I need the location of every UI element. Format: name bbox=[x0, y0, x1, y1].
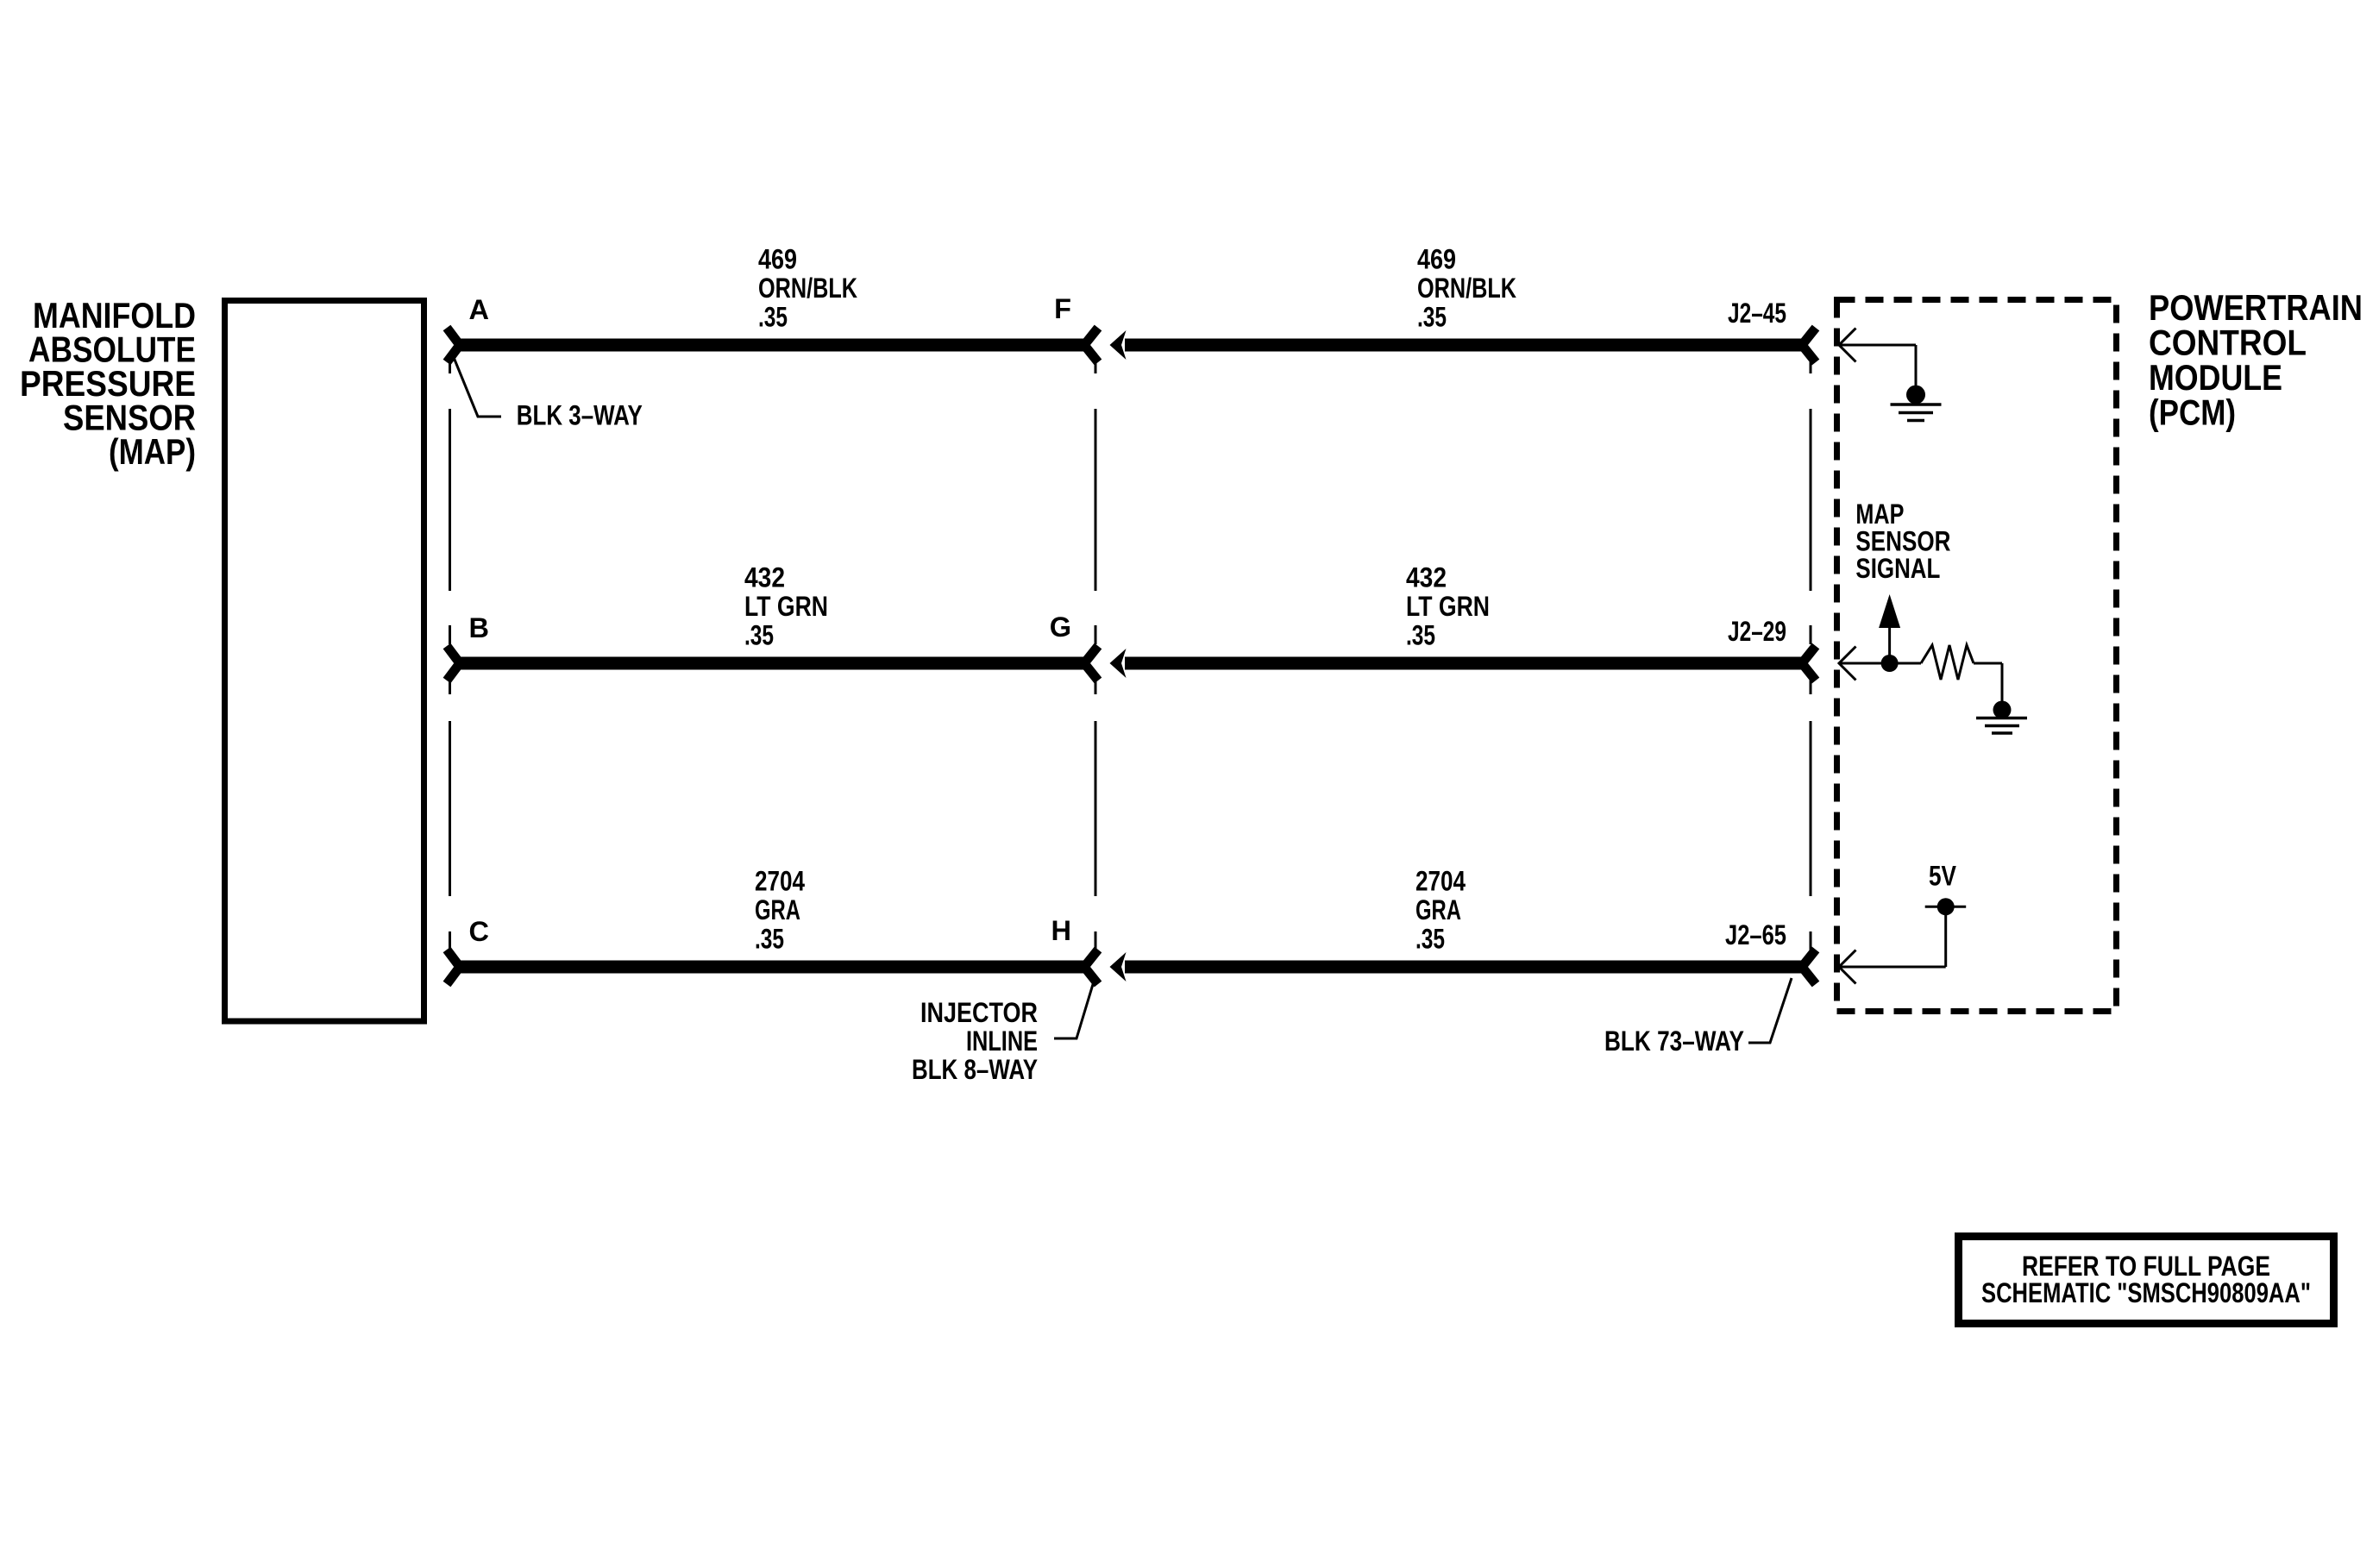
svg-text:H: H bbox=[1051, 915, 1071, 946]
svg-text:(PCM): (PCM) bbox=[2149, 392, 2236, 433]
svg-text:2704: 2704 bbox=[755, 866, 805, 897]
svg-text:B: B bbox=[469, 612, 489, 643]
svg-text:ORN/BLK: ORN/BLK bbox=[758, 273, 857, 304]
svg-text:ORN/BLK: ORN/BLK bbox=[1417, 273, 1516, 304]
svg-text:BLK 73–WAY: BLK 73–WAY bbox=[1604, 1025, 1744, 1057]
svg-text:INLINE: INLINE bbox=[966, 1025, 1038, 1057]
svg-text:469: 469 bbox=[1417, 244, 1456, 275]
svg-text:J2–29: J2–29 bbox=[1728, 616, 1786, 647]
svg-text:INJECTOR: INJECTOR bbox=[920, 997, 1038, 1028]
svg-text:SIGNAL: SIGNAL bbox=[1855, 553, 1940, 584]
svg-text:G: G bbox=[1050, 612, 1071, 643]
svg-text:LT GRN: LT GRN bbox=[1406, 591, 1490, 622]
svg-text:.35: .35 bbox=[755, 923, 784, 954]
svg-text:.35: .35 bbox=[1406, 619, 1435, 650]
svg-text:J2–45: J2–45 bbox=[1728, 298, 1786, 329]
svg-text:BLK 3–WAY: BLK 3–WAY bbox=[517, 399, 643, 430]
svg-text:GRA: GRA bbox=[755, 894, 800, 925]
svg-text:J2–65: J2–65 bbox=[1725, 919, 1786, 950]
svg-text:F: F bbox=[1054, 293, 1071, 324]
svg-text:432: 432 bbox=[1406, 562, 1447, 593]
svg-text:432: 432 bbox=[744, 562, 785, 593]
svg-text:(MAP): (MAP) bbox=[109, 431, 196, 472]
svg-text:5V: 5V bbox=[1929, 860, 1956, 891]
svg-text:C: C bbox=[469, 916, 489, 947]
svg-text:.35: .35 bbox=[1415, 923, 1445, 954]
svg-text:.35: .35 bbox=[1417, 301, 1447, 332]
svg-text:SCHEMATIC "SMSCH90809AA": SCHEMATIC "SMSCH90809AA" bbox=[1981, 1277, 2311, 1308]
svg-text:469: 469 bbox=[758, 244, 797, 275]
svg-text:A: A bbox=[469, 294, 489, 325]
svg-text:2704: 2704 bbox=[1415, 866, 1466, 897]
svg-text:GRA: GRA bbox=[1415, 894, 1461, 925]
svg-text:BLK 8–WAY: BLK 8–WAY bbox=[912, 1054, 1038, 1085]
svg-text:LT GRN: LT GRN bbox=[744, 591, 828, 622]
svg-text:.35: .35 bbox=[758, 301, 788, 332]
svg-text:.35: .35 bbox=[744, 619, 774, 650]
